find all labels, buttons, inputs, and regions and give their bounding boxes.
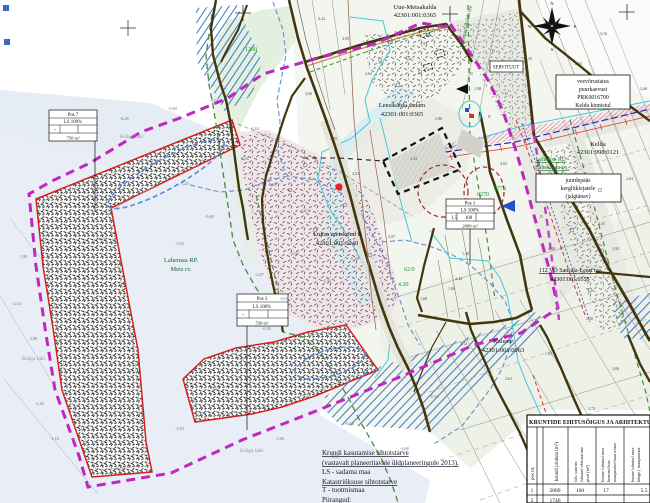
svg-text:42301:998:0121: 42301:998:0121 bbox=[577, 149, 620, 156]
svg-text:Mets rv.: Mets rv. bbox=[170, 266, 192, 273]
svg-text:hoone lubatud max: hoone lubatud max bbox=[600, 447, 605, 482]
svg-text:(vastavalt planeeritavale üldp: (vastavalt planeeritavale üldplaneeringu… bbox=[322, 459, 459, 467]
svg-text:puurkaevust: puurkaevust bbox=[579, 87, 608, 93]
svg-text:lubatud ehitusalune: lubatud ehitusalune bbox=[579, 447, 584, 482]
svg-text:Kolga laht: Kolga laht bbox=[22, 356, 46, 362]
svg-text:pind (m²): pind (m²) bbox=[585, 465, 590, 482]
svg-text:hoone lubatud max: hoone lubatud max bbox=[630, 447, 635, 482]
svg-text:Kelda: Kelda bbox=[590, 141, 606, 148]
svg-text:Katastriüksuse sihtotstarve: Katastriüksuse sihtotstarve bbox=[322, 478, 397, 486]
svg-text:750 m²: 750 m² bbox=[67, 136, 81, 141]
svg-text:maapealne/maa-alune: maapealne/maa-alune bbox=[612, 443, 617, 482]
svg-text:LS - sadama maa: LS - sadama maa bbox=[322, 468, 371, 476]
svg-text:pos nr.: pos nr. bbox=[531, 467, 536, 480]
svg-text:42301:001:0365: 42301:001:0365 bbox=[381, 111, 424, 118]
svg-text:Pos 1: Pos 1 bbox=[465, 202, 476, 207]
svg-text:2: 2 bbox=[531, 498, 534, 503]
svg-text:Kaluste: Kaluste bbox=[493, 338, 513, 345]
svg-text:42301:001:0240: 42301:001:0240 bbox=[316, 240, 359, 247]
svg-text:62/0: 62/0 bbox=[404, 267, 415, 273]
svg-text:4.20: 4.20 bbox=[398, 282, 409, 288]
svg-text:KRUNTIDE EHITUSÕIGUS JA ARHITE: KRUNTIDE EHITUSÕIGUS JA ARHITEKTUUR bbox=[529, 418, 650, 426]
svg-text:0776: 0776 bbox=[494, 186, 506, 192]
svg-text:6270: 6270 bbox=[477, 192, 489, 198]
svg-text:Kelda kinnistul: Kelda kinnistul bbox=[575, 103, 611, 109]
svg-text:(jalgtänav): (jalgtänav) bbox=[565, 193, 590, 200]
svg-text:korruselisus: korruselisus bbox=[606, 460, 611, 482]
svg-text:LS 100%: LS 100% bbox=[253, 305, 271, 310]
svg-text:Uue-Metsakalda: Uue-Metsakalda bbox=[394, 4, 437, 11]
svg-text:kergliiklejatele: kergliiklejatele bbox=[561, 186, 596, 192]
svg-text:5.5: 5.5 bbox=[641, 488, 648, 494]
svg-text:Kolga laht: Kolga laht bbox=[240, 448, 264, 454]
svg-text:17: 17 bbox=[603, 488, 609, 494]
svg-text:–: – bbox=[241, 313, 245, 318]
svg-text:PRK0016700: PRK0016700 bbox=[577, 95, 609, 101]
svg-text:42301:001:0063: 42301:001:0063 bbox=[482, 347, 525, 354]
svg-text:1,5: 1,5 bbox=[451, 216, 458, 221]
svg-text:Leesikalda sadam: Leesikalda sadam bbox=[379, 102, 425, 109]
svg-text:1746: 1746 bbox=[550, 498, 561, 503]
svg-text:2089: 2089 bbox=[550, 488, 561, 494]
svg-text:Lahemaa RP.: Lahemaa RP. bbox=[164, 257, 199, 264]
svg-text:Lahekalda ps: Lahekalda ps bbox=[535, 165, 567, 171]
svg-text:42301:001:0555: 42301:001:0555 bbox=[550, 277, 589, 283]
svg-text:Kolga laht: Kolga laht bbox=[120, 134, 144, 140]
svg-text:LS 100%: LS 100% bbox=[64, 120, 82, 125]
svg-text:krundi pindala (m²): krundi pindala (m²) bbox=[554, 442, 560, 481]
svg-text:2089 m²: 2089 m² bbox=[462, 224, 478, 229]
svg-text:Piirangud:: Piirangud: bbox=[322, 496, 351, 503]
svg-text:Pos 3: Pos 3 bbox=[257, 297, 268, 302]
svg-text:100: 100 bbox=[465, 216, 473, 221]
svg-text:kõrge ( maapinnast: kõrge ( maapinnast bbox=[636, 447, 641, 482]
svg-text:530 m²: 530 m² bbox=[256, 321, 270, 326]
svg-text:juurdepääs: juurdepääs bbox=[564, 178, 591, 184]
svg-text:100: 100 bbox=[576, 488, 585, 494]
svg-text:Lehtmse RÜ: Lehtmse RÜ bbox=[536, 156, 567, 163]
svg-text:1200: 1200 bbox=[245, 47, 257, 53]
svg-text:T - tootmismaa: T - tootmismaa bbox=[322, 486, 366, 494]
svg-text:E: E bbox=[574, 24, 577, 29]
svg-text:lub. suurim: lub. suurim bbox=[573, 461, 578, 482]
svg-text:Pos 7: Pos 7 bbox=[68, 113, 79, 118]
svg-text:1: 1 bbox=[531, 488, 534, 494]
svg-text:Loksa metskond 6: Loksa metskond 6 bbox=[313, 231, 361, 238]
svg-text:veevõrustatus: veevõrustatus bbox=[577, 79, 610, 85]
svg-text:SERVITUUT: SERVITUUT bbox=[493, 66, 519, 71]
svg-text:LS 100%: LS 100% bbox=[461, 209, 479, 214]
svg-text:42301:001:0365: 42301:001:0365 bbox=[394, 12, 437, 19]
svg-text:–: – bbox=[53, 128, 57, 133]
svg-text:112 VÕ Sansala-Leesi tee: 112 VÕ Sansala-Leesi tee bbox=[539, 266, 601, 274]
